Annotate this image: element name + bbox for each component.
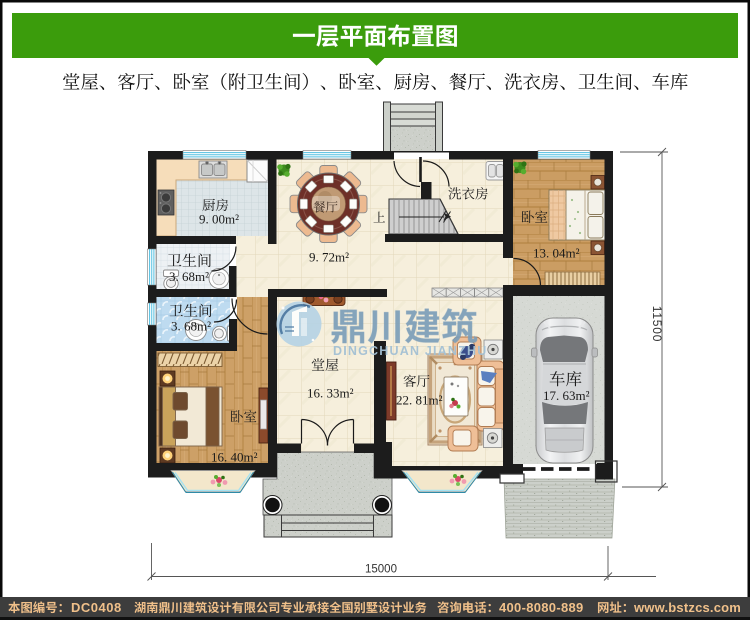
svg-text:16. 33m²: 16. 33m² — [307, 386, 354, 401]
svg-text:400-8080-889: 400-8080-889 — [499, 600, 584, 615]
svg-text:DC0408: DC0408 — [71, 600, 122, 615]
svg-text:13. 04m²: 13. 04m² — [533, 246, 580, 261]
svg-text:11500: 11500 — [650, 306, 664, 342]
svg-text:9. 72m²: 9. 72m² — [309, 250, 349, 265]
svg-text:15000: 15000 — [365, 564, 397, 576]
svg-text:16. 40m²: 16. 40m² — [211, 450, 258, 465]
svg-text:17. 63m²: 17. 63m² — [543, 388, 590, 403]
svg-text:3. 68m²: 3. 68m² — [169, 269, 209, 284]
svg-text:22. 81m²: 22. 81m² — [396, 393, 443, 408]
svg-text:www.bstzcs.com: www.bstzcs.com — [633, 600, 741, 615]
svg-text:9. 00m²: 9. 00m² — [199, 212, 239, 227]
svg-text:3. 68m²: 3. 68m² — [171, 319, 211, 334]
svg-text:DINGCHUAN JIANZHU: DINGCHUAN JIANZHU — [333, 344, 487, 358]
